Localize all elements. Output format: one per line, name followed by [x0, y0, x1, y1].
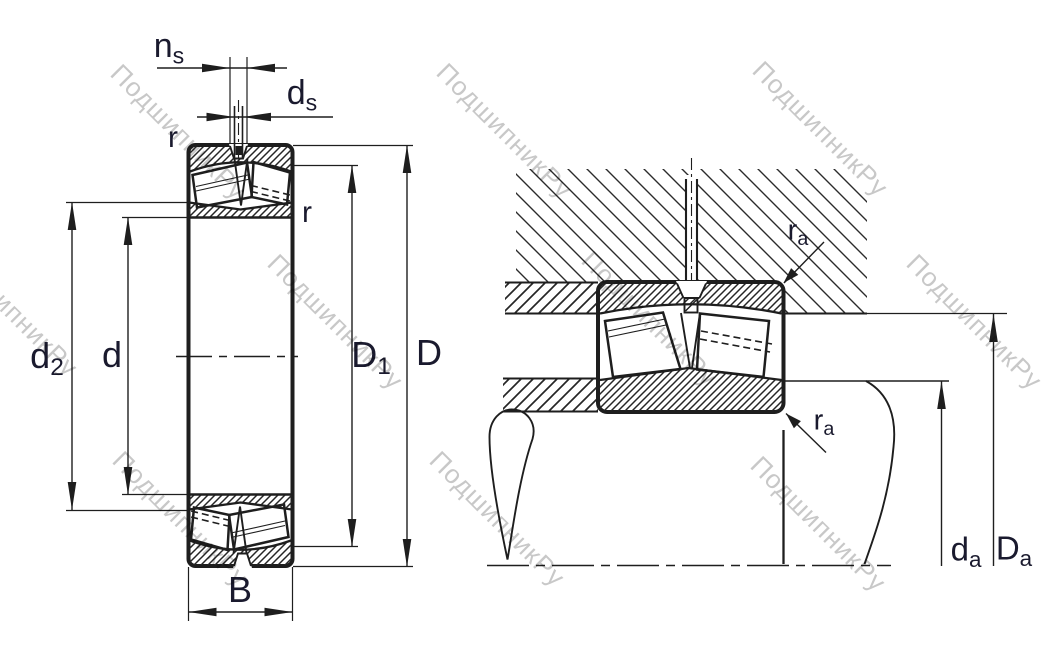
label-ds: ds — [287, 76, 317, 110]
label-da: da — [951, 533, 982, 566]
label-r-outer: r — [168, 123, 178, 153]
right-view-mounted-section — [487, 158, 1007, 566]
label-B: B — [228, 572, 252, 608]
technical-drawing-canvas — [0, 0, 1050, 650]
label-d2: d2 — [30, 338, 64, 374]
label-Da: Da — [996, 532, 1032, 565]
label-ns: ns — [154, 29, 184, 63]
label-r-inner: r — [302, 198, 312, 228]
label-d: d — [102, 337, 122, 373]
label-D: D — [416, 335, 442, 371]
bearing-drawing-page: ПодшипникРу ПодшипникРу ПодшипникРу Подш… — [0, 0, 1050, 650]
label-D1: D1 — [351, 337, 391, 373]
label-ra-top: ra — [788, 217, 809, 246]
label-ra-bottom: ra — [814, 407, 835, 436]
